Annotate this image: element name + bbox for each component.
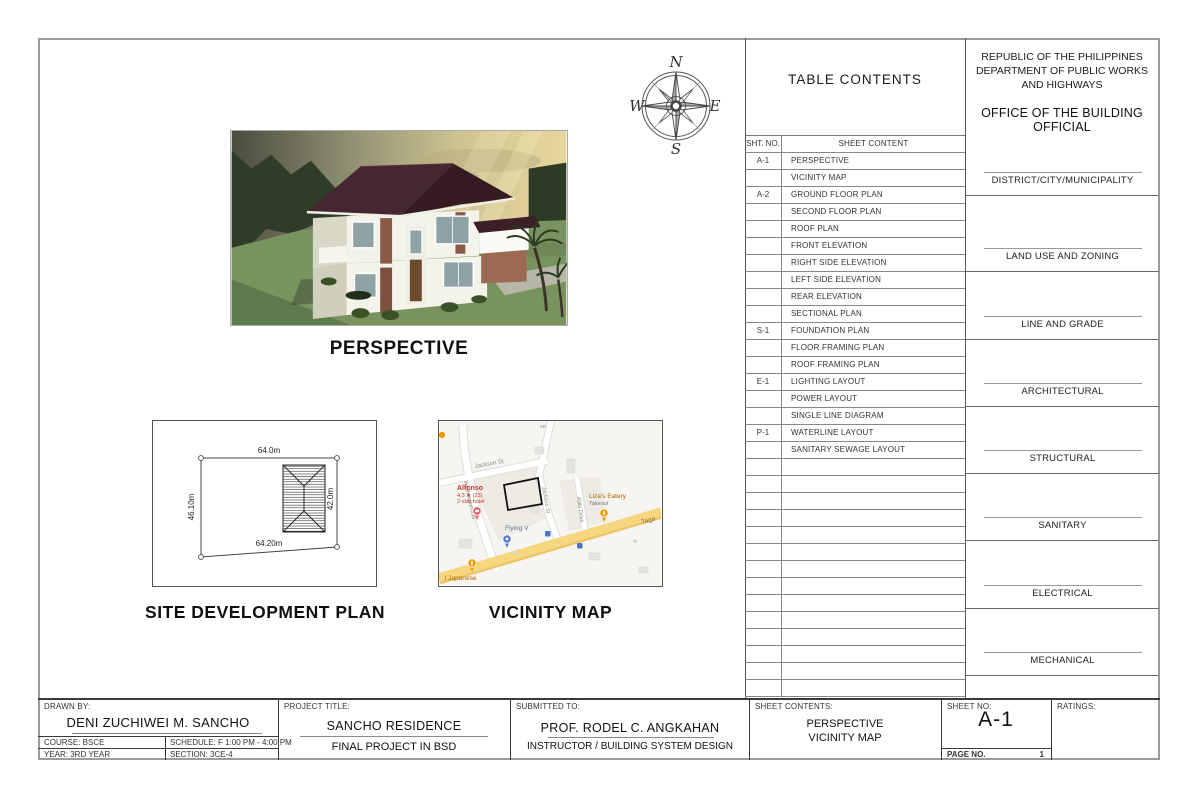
toc-cell-sheet-no <box>745 221 782 237</box>
toc-cell-sheet-content: FLOOR FRAMING PLAN <box>782 340 965 356</box>
site-development-plan-box: 64.0m 46.10m 42.0m 64.20m <box>152 420 377 587</box>
toc-row: SANITARY SEWAGE LAYOUT <box>745 442 965 459</box>
toc-cell-sheet-no <box>745 238 782 254</box>
toc-cell-sheet-no <box>745 663 782 679</box>
vicinity-map-drawing: Jackson St Jackson St Washington Ave Ali… <box>439 421 661 585</box>
drawn-by-name: DENI ZUCHIWEI M. SANCHO <box>40 715 276 730</box>
toc-cell-sheet-no <box>745 578 782 594</box>
site-dim-left: 46.10m <box>187 493 196 520</box>
section-text: SECTION: 3CE-4 <box>170 750 233 759</box>
approval-section-line-grade: LINE AND GRADE <box>966 316 1159 340</box>
sheet-contents-label: SHEET CONTENTS: <box>755 702 833 711</box>
toc-row-empty <box>745 578 965 595</box>
toc-title: TABLE CONTENTS <box>745 72 965 87</box>
toc-row: LEFT SIDE ELEVATION <box>745 272 965 289</box>
compass-west-label: W <box>629 97 646 115</box>
toc-cell-sheet-content: FOUNDATION PLAN <box>782 323 965 339</box>
toc-cell-sheet-no <box>745 340 782 356</box>
toc-cell-sheet-no <box>745 408 782 424</box>
toc-row: REAR ELEVATION <box>745 289 965 306</box>
project-title-label: PROJECT TITLE: <box>284 702 350 711</box>
toc-rows: A-1PERSPECTIVEVICINITY MAPA-2GROUND FLOO… <box>745 153 965 697</box>
toc-row: FRONT ELEVATION <box>745 238 965 255</box>
site-dim-right: 42.0m <box>326 488 335 511</box>
page-no-value: 1 <box>1020 750 1044 759</box>
toc-cell-sheet-content: VICINITY MAP <box>782 170 965 186</box>
project-subtitle: FINAL PROJECT IN BSD <box>280 741 508 753</box>
compass-north-label: N <box>668 54 683 71</box>
toc-header-row: SHT. NO. SHEET CONTENT <box>745 136 965 153</box>
toc-cell-sheet-content: ROOF PLAN <box>782 221 965 237</box>
poi-flying-v-name: Flying V <box>505 525 529 532</box>
toc-cell-sheet-no <box>745 544 782 560</box>
toc-row: S-1FOUNDATION PLAN <box>745 323 965 340</box>
toc-row-empty <box>745 527 965 544</box>
ratings-label: RATINGS: <box>1057 702 1096 711</box>
toc-cell-sheet-no <box>745 646 782 662</box>
toc-row: VICINITY MAP <box>745 170 965 187</box>
road-label-fragment: ve <box>540 424 546 430</box>
toc-row-empty <box>745 663 965 680</box>
toc-row: E-1LIGHTING LAYOUT <box>745 374 965 391</box>
compass-rose-icon: N S W E <box>628 54 724 156</box>
toc-row: A-1PERSPECTIVE <box>745 153 965 170</box>
org-line-3: AND HIGHWAYS <box>967 78 1157 92</box>
toc-cell-sheet-content: SANITARY SEWAGE LAYOUT <box>782 442 965 458</box>
toc-row-empty <box>745 544 965 561</box>
toc-cell-sheet-content <box>782 646 965 662</box>
toc-cell-sheet-content <box>782 493 965 509</box>
poi-lizas-type: Takeout <box>589 501 609 507</box>
org-line-1: REPUBLIC OF THE PHILIPPINES <box>967 50 1157 64</box>
toc-cell-sheet-content <box>782 595 965 611</box>
toc-cell-sheet-no: P-1 <box>745 425 782 441</box>
toc-header-sheet-no: SHT. NO. <box>745 136 782 152</box>
toc-cell-sheet-no <box>745 476 782 492</box>
toc-row: SECTIONAL PLAN <box>745 306 965 323</box>
toc-cell-sheet-content: SECTIONAL PLAN <box>782 306 965 322</box>
year-text: YEAR: 3RD YEAR <box>44 750 110 759</box>
org-header: REPUBLIC OF THE PHILIPPINES DEPARTMENT O… <box>967 50 1157 92</box>
page-no-label: PAGE NO. <box>947 750 986 759</box>
toc-cell-sheet-content: LIGHTING LAYOUT <box>782 374 965 390</box>
toc-row: A-2GROUND FLOOR PLAN <box>745 187 965 204</box>
approval-section-architectural: ARCHITECTURAL <box>966 383 1159 407</box>
toc-cell-sheet-no <box>745 289 782 305</box>
toc-cell-sheet-no <box>745 561 782 577</box>
toc-cell-sheet-no <box>745 170 782 186</box>
toc-cell-sheet-no <box>745 442 782 458</box>
toc-row-empty <box>745 510 965 527</box>
toc-cell-sheet-content <box>782 544 965 560</box>
schedule-text: SCHEDULE: F 1:00 PM - 4:00 PM <box>170 738 292 747</box>
tb-sub-line-1 <box>38 736 278 737</box>
toc-row-empty <box>745 459 965 476</box>
compass-east-label: E <box>709 97 721 115</box>
toc-cell-sheet-no <box>745 595 782 611</box>
org-line-2: DEPARTMENT OF PUBLIC WORKS <box>967 64 1157 78</box>
toc-cell-sheet-no: A-2 <box>745 187 782 203</box>
toc-cell-sheet-no <box>745 357 782 373</box>
toc-row: POWER LAYOUT <box>745 391 965 408</box>
toc-cell-sheet-no <box>745 680 782 696</box>
toc-row: ROOF FRAMING PLAN <box>745 357 965 374</box>
tb-sub-divider <box>165 736 166 760</box>
toc-cell-sheet-content: WATERLINE LAYOUT <box>782 425 965 441</box>
course-text: COURSE: BSCE <box>44 738 104 747</box>
site-development-plan-drawing: 64.0m 46.10m 42.0m 64.20m <box>153 421 375 585</box>
transit-icon-2 <box>577 543 583 549</box>
toc-cell-sheet-content: ROOF FRAMING PLAN <box>782 357 965 373</box>
toc-row: RIGHT SIDE ELEVATION <box>745 255 965 272</box>
toc-cell-sheet-no <box>745 459 782 475</box>
toc-row: FLOOR FRAMING PLAN <box>745 340 965 357</box>
approval-section-structural: STRUCTURAL <box>966 450 1159 474</box>
poi-alfonso-type: 2-star hotel <box>457 499 485 505</box>
toc-cell-sheet-content <box>782 629 965 645</box>
vicinity-map-box: Jackson St Jackson St Washington Ave Ali… <box>438 420 663 587</box>
tb-sub-line-2 <box>38 748 278 749</box>
toc-cell-sheet-content: SINGLE LINE DIAGRAM <box>782 408 965 424</box>
toc-cell-sheet-no <box>745 306 782 322</box>
site-dim-bottom: 64.20m <box>256 539 283 548</box>
toc-cell-sheet-content: SECOND FLOOR PLAN <box>782 204 965 220</box>
page-no-divider <box>941 748 1051 749</box>
toc-cell-sheet-no <box>745 272 782 288</box>
toc-row-empty <box>745 561 965 578</box>
toc-cell-sheet-no: A-1 <box>745 153 782 169</box>
toc-row-empty <box>745 595 965 612</box>
submitted-to-name: PROF. RODEL C. ANGKAHAN <box>512 721 748 735</box>
approval-section-sanitary: SANITARY <box>966 517 1159 541</box>
site-dim-top: 64.0m <box>258 446 281 455</box>
toc-cell-sheet-content: RIGHT SIDE ELEVATION <box>782 255 965 271</box>
drawing-sheet-page: N S W E <box>0 0 1200 800</box>
perspective-title: PERSPECTIVE <box>230 338 568 360</box>
toc-cell-sheet-content: GROUND FLOOR PLAN <box>782 187 965 203</box>
site-development-plan-title: SITE DEVELOPMENT PLAN <box>140 602 390 623</box>
title-block-top-border <box>38 698 1160 700</box>
transit-icon <box>545 531 551 537</box>
toc-row-empty <box>745 680 965 697</box>
submitted-to-role: INSTRUCTOR / BUILDING SYSTEM DESIGN <box>512 741 748 752</box>
toc-cell-sheet-content: POWER LAYOUT <box>782 391 965 407</box>
drawn-by-label: DRAWN BY: <box>44 702 90 711</box>
sheet-contents-line2: VICINITY MAP <box>751 732 939 744</box>
toc-cell-sheet-content <box>782 459 965 475</box>
toc-row: SECOND FLOOR PLAN <box>745 204 965 221</box>
tb-divider-3 <box>749 698 750 760</box>
toc-cell-sheet-content <box>782 510 965 526</box>
sheet-no-value: A-1 <box>941 708 1051 732</box>
toc-table: SHT. NO. SHEET CONTENT A-1PERSPECTIVEVIC… <box>745 135 965 697</box>
project-title-underline <box>300 736 488 737</box>
tb-divider-2 <box>510 698 511 760</box>
toc-cell-sheet-content <box>782 527 965 543</box>
toc-cell-sheet-no <box>745 629 782 645</box>
sheet-contents-line1: PERSPECTIVE <box>751 718 939 730</box>
submitted-to-underline <box>548 737 714 738</box>
toc-row-empty <box>745 476 965 493</box>
toc-cell-sheet-content <box>782 663 965 679</box>
compass-south-label: S <box>671 140 681 156</box>
toc-cell-sheet-no <box>745 612 782 628</box>
drawn-by-underline <box>72 733 262 734</box>
toc-cell-sheet-content <box>782 612 965 628</box>
toc-cell-sheet-no: S-1 <box>745 323 782 339</box>
tb-divider-1 <box>278 698 279 760</box>
toc-cell-sheet-no <box>745 527 782 543</box>
toc-cell-sheet-content: FRONT ELEVATION <box>782 238 965 254</box>
toc-cell-sheet-no: E-1 <box>745 374 782 390</box>
project-title: SANCHO RESIDENCE <box>280 719 508 733</box>
toc-cell-sheet-no <box>745 391 782 407</box>
approval-section-mechanical: MECHANICAL <box>966 652 1159 676</box>
toc-row-empty <box>745 646 965 663</box>
poi-lizas-name: Liza's Eatery <box>589 493 627 500</box>
perspective-render <box>230 130 568 326</box>
toc-cell-sheet-content: LEFT SIDE ELEVATION <box>782 272 965 288</box>
toc-row-empty <box>745 493 965 510</box>
toc-cell-sheet-content: PERSPECTIVE <box>782 153 965 169</box>
toc-cell-sheet-no <box>745 204 782 220</box>
restaurant-pin-icon-3 <box>439 431 446 438</box>
toc-cell-sheet-content <box>782 680 965 696</box>
toc-row: P-1WATERLINE LAYOUT <box>745 425 965 442</box>
approval-section-electrical: ELECTRICAL <box>966 585 1159 609</box>
approval-section-district: DISTRICT/CITY/MUNICIPALITY <box>966 172 1159 196</box>
toc-cell-sheet-content <box>782 561 965 577</box>
toc-cell-sheet-no <box>745 255 782 271</box>
toc-row-empty <box>745 612 965 629</box>
poi-japanese-name: l Japanese <box>445 575 477 582</box>
approval-section-land-use: LAND USE AND ZONING <box>966 248 1159 272</box>
vicinity-map-title: VICINITY MAP <box>438 602 663 623</box>
toc-cell-sheet-content: REAR ELEVATION <box>782 289 965 305</box>
toc-cell-sheet-no <box>745 510 782 526</box>
poi-alfonso-name: Alfonso <box>457 485 483 492</box>
toc-row: SINGLE LINE DIAGRAM <box>745 408 965 425</box>
toc-header-sheet-content: SHEET CONTENT <box>782 136 965 152</box>
toc-row: ROOF PLAN <box>745 221 965 238</box>
toc-cell-sheet-no <box>745 493 782 509</box>
tb-divider-5 <box>1051 698 1052 760</box>
submitted-to-label: SUBMITTED TO: <box>516 702 580 711</box>
poi-alfonso-rating: 4.3 ★ (23) <box>457 492 483 499</box>
office-of-building-official: OFFICE OF THE BUILDING OFFICIAL <box>963 106 1161 134</box>
toc-cell-sheet-content <box>782 578 965 594</box>
toc-cell-sheet-content <box>782 476 965 492</box>
toc-row-empty <box>745 629 965 646</box>
